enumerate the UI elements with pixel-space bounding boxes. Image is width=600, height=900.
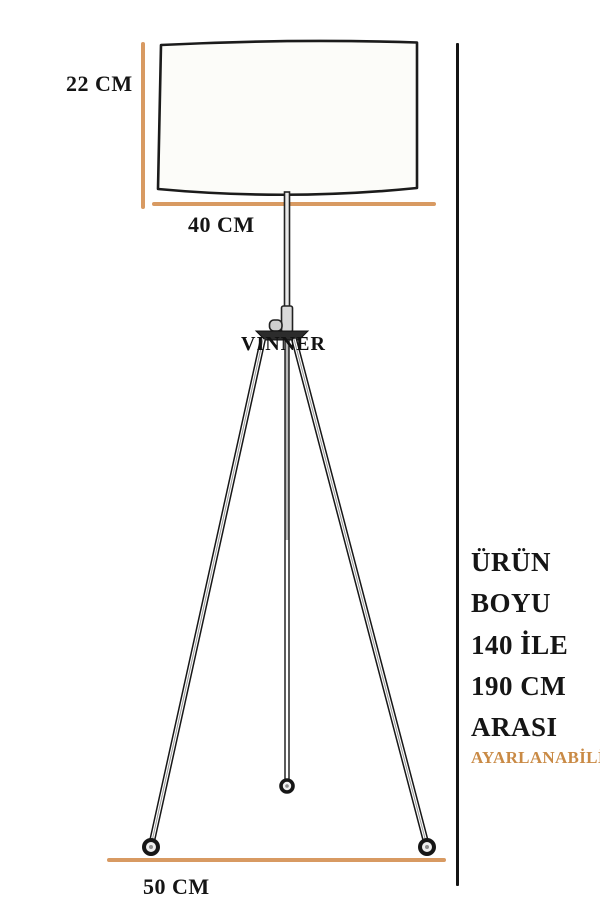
lampshade-shape (158, 41, 417, 195)
tripod-left-leg (151, 339, 263, 846)
lamp-upper-pole (285, 192, 290, 308)
right-foot-ball (420, 840, 434, 854)
floor-lamp-illustration (0, 0, 600, 900)
center-foot-ball (281, 780, 293, 792)
tripod-right-leg (294, 339, 427, 846)
adjustment-knob (270, 320, 283, 331)
brand-watermark: VINNER (241, 333, 326, 356)
left-foot-ball (144, 840, 158, 854)
pole-clamp-section (282, 306, 293, 332)
product-dimension-diagram: 22 CM 40 CM 50 CM VINNER ÜRÜN BOYU 140 İ… (0, 0, 600, 900)
